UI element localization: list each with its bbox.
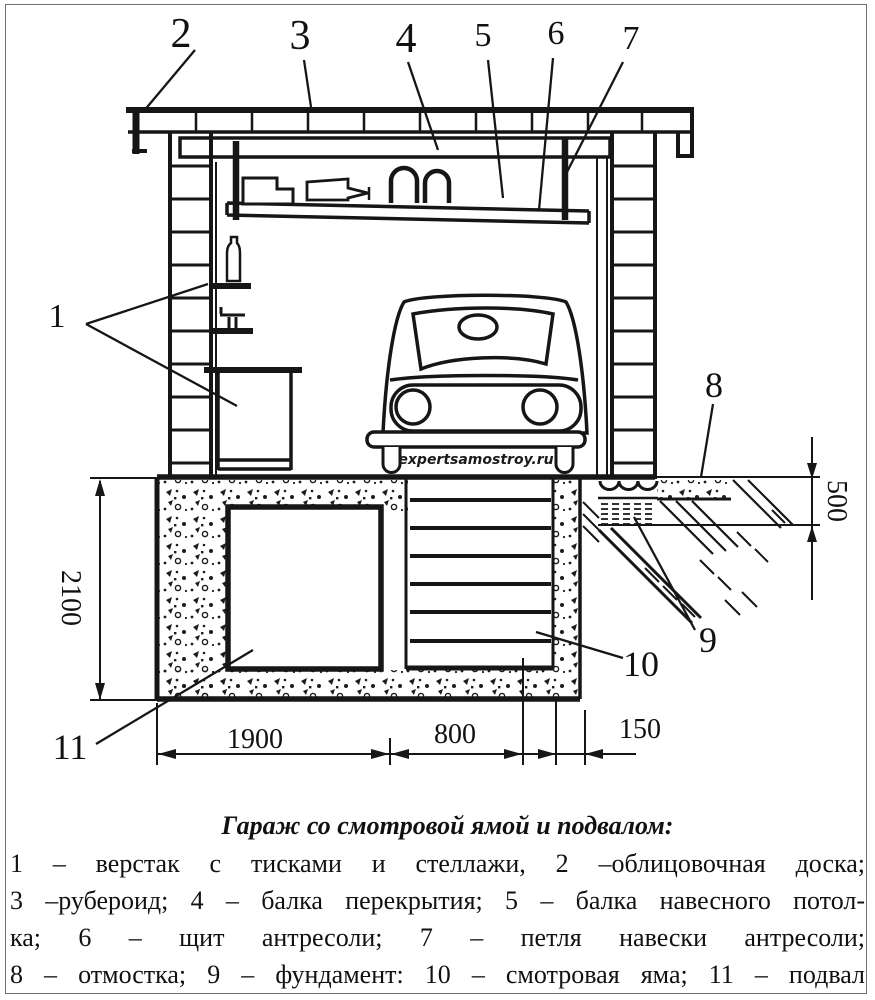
partition-top-concrete bbox=[382, 480, 408, 512]
cellar-left-wall-concrete bbox=[159, 480, 227, 697]
workbench-and-shelves bbox=[204, 237, 302, 470]
figure-legend: 1 – верстак с тисками и стеллажи, 2 –обл… bbox=[10, 845, 865, 993]
shelf-item-box bbox=[243, 178, 293, 204]
cellar-void bbox=[228, 507, 381, 669]
roof-plank-joints bbox=[196, 111, 642, 131]
foundation-rubble-hatch bbox=[601, 504, 656, 524]
leader-6 bbox=[539, 58, 553, 210]
right-wall-lining bbox=[597, 158, 607, 477]
car-headlight-left bbox=[396, 390, 430, 424]
legend-line-1: 1 – верстак с тисками и стеллажи, 2 –обл… bbox=[10, 845, 865, 882]
pit-lining-boards bbox=[410, 500, 551, 641]
left-wall-edges bbox=[170, 133, 211, 477]
wall-shelf-boards bbox=[211, 286, 253, 331]
figure-caption: Гараж со смотровой ямой и подвалом: bbox=[0, 811, 875, 841]
callout-2: 2 bbox=[171, 11, 192, 57]
trench-gap-hatch bbox=[583, 502, 599, 542]
left-wall-brick-courses bbox=[170, 166, 211, 463]
garage-section-diagram: 1900 800 150 2100 500 1 2 3 4 5 6 7 8 9 … bbox=[0, 0, 875, 810]
mezzanine-shelf-board bbox=[227, 203, 589, 223]
right-wall-brick-courses bbox=[612, 166, 655, 463]
callout-6: 6 bbox=[548, 15, 565, 52]
leader-8 bbox=[701, 404, 713, 477]
watermark: expertsamostroy.ru bbox=[398, 452, 553, 468]
foundation-and-earth bbox=[583, 480, 793, 623]
legend-line-2: 3 –рубероид; 4 – балка перекрытия; 5 – б… bbox=[10, 882, 865, 919]
right-wall-edges bbox=[612, 133, 655, 479]
car-bumper bbox=[367, 432, 585, 447]
dim-500: 500 bbox=[821, 480, 852, 522]
callout-10: 10 bbox=[623, 644, 659, 684]
car-wheel-right bbox=[556, 447, 573, 473]
pit-cellar-partition bbox=[386, 512, 404, 668]
callout-4: 4 bbox=[396, 16, 417, 62]
leader-3 bbox=[304, 60, 311, 107]
shelf-bottle bbox=[227, 237, 240, 281]
bottom-slab-concrete bbox=[159, 670, 580, 697]
callout-9: 9 bbox=[699, 620, 717, 660]
callout-1: 1 bbox=[49, 298, 66, 335]
shelf-item-oilcan bbox=[307, 179, 368, 200]
cellar-ceiling-concrete bbox=[227, 480, 382, 507]
car-headlight-right bbox=[523, 390, 557, 424]
leader-5 bbox=[488, 60, 503, 198]
car-mirror bbox=[459, 315, 497, 339]
legend-line-4: 8 – отмостка; 9 – фундамент: 10 – смотро… bbox=[10, 956, 865, 993]
workbench-body bbox=[218, 373, 291, 470]
foundation-stone-scallops bbox=[600, 481, 657, 490]
callout-3: 3 bbox=[290, 13, 311, 59]
callout-7: 7 bbox=[623, 20, 640, 57]
shelf-clamp bbox=[220, 307, 245, 330]
dim-2100: 2100 bbox=[55, 570, 86, 626]
callout-11: 11 bbox=[53, 727, 88, 767]
leader-1 bbox=[86, 284, 237, 406]
earth-grass-ticks bbox=[645, 510, 785, 617]
shelf-item-jars bbox=[391, 168, 449, 203]
leader-2 bbox=[143, 50, 195, 112]
dim-1900: 1900 bbox=[227, 724, 283, 755]
dim-800: 800 bbox=[434, 719, 476, 750]
dim-150: 150 bbox=[619, 714, 661, 745]
callout-8: 8 bbox=[705, 365, 723, 405]
blind-area-concrete bbox=[657, 480, 730, 499]
legend-line-3: ка; 6 – щит антресоли; 7 – петля навески… bbox=[10, 919, 865, 956]
car bbox=[367, 295, 587, 472]
diagram-page: 1900 800 150 2100 500 1 2 3 4 5 6 7 8 9 … bbox=[0, 0, 875, 1000]
callout-5: 5 bbox=[475, 17, 492, 54]
